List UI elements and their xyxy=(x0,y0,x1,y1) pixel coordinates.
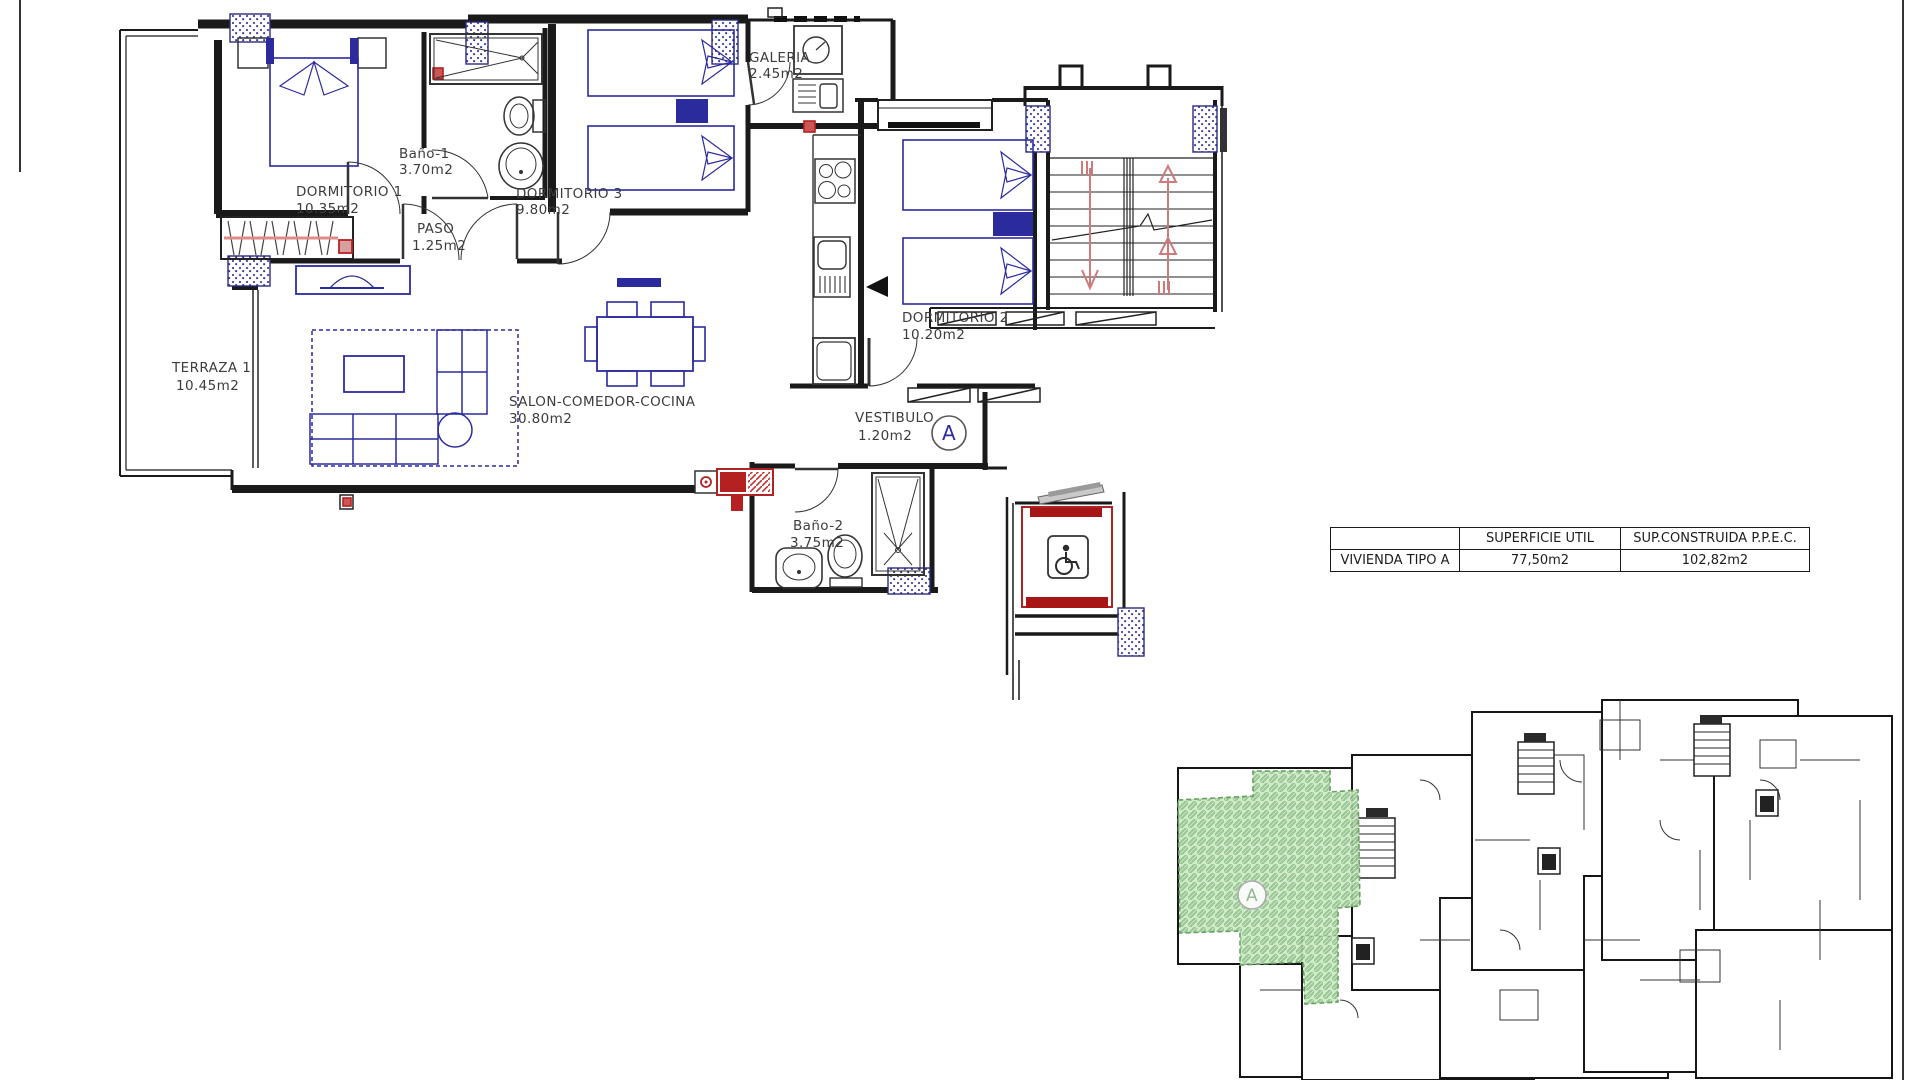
dorm2-window xyxy=(878,100,992,130)
label-galeria-area: 2.45m2 xyxy=(749,66,803,82)
summary-table-row-label: VIVIENDA TIPO A xyxy=(1331,550,1460,572)
label-dormitorio-3: DORMITORIO 3 xyxy=(516,186,623,202)
label-galeria: GALERIA xyxy=(749,50,811,66)
summary-table-superficie-util-value: 77,50m2 xyxy=(1460,550,1621,572)
twin-beds-icon xyxy=(903,140,1033,304)
laundry-sink-icon xyxy=(793,79,843,112)
label-bano-1: Baño-1 xyxy=(399,146,449,162)
key-plan-unit-letter: A xyxy=(1246,886,1258,906)
washbasin-icon xyxy=(499,143,543,189)
summary-table-col-superficie: SUPERFICIE UTIL xyxy=(1460,528,1621,550)
coffee-table xyxy=(344,356,404,392)
label-terraza-1-area: 10.45m2 xyxy=(176,378,239,394)
label-dormitorio-2: DORMITORIO 2 xyxy=(902,310,1009,326)
dining-table-icon xyxy=(585,278,705,386)
label-vestibulo: VESTIBULO xyxy=(855,410,934,426)
summary-table-header-row: SUPERFICIE UTIL SUP.CONSTRUIDA P.P.E.C. xyxy=(1331,528,1810,550)
label-vestibulo-area: 1.20m2 xyxy=(858,428,912,444)
label-dormitorio-3-area: 9.80m2 xyxy=(516,202,570,218)
staircase xyxy=(1050,158,1214,296)
summary-table-col-construida: SUP.CONSTRUIDA P.P.E.C. xyxy=(1621,528,1810,550)
counter-edge xyxy=(813,135,861,385)
label-salon-area: 30.80m2 xyxy=(509,411,572,427)
label-bano-1-area: 3.70m2 xyxy=(399,162,453,178)
sofa-icon xyxy=(310,330,487,464)
hob-icon xyxy=(815,159,855,203)
summary-table: SUPERFICIE UTIL SUP.CONSTRUIDA P.P.E.C. … xyxy=(1330,527,1810,572)
unit-marker-letter: A xyxy=(942,421,956,445)
electrical-panel xyxy=(695,469,773,511)
label-dormitorio-2-area: 10.20m2 xyxy=(902,327,965,343)
washbasin-icon xyxy=(776,548,822,588)
elevator xyxy=(1022,482,1112,608)
shower-icon xyxy=(872,473,924,575)
wheelchair-icon xyxy=(1048,536,1088,578)
louver-window xyxy=(221,217,353,259)
summary-table-data-row: VIVIENDA TIPO A 77,50m2 102,82m2 xyxy=(1331,550,1810,572)
summary-table-corner-cell xyxy=(1331,528,1460,550)
label-paso-area: 1.25m2 xyxy=(412,238,466,254)
kitchen-sink-icon xyxy=(814,237,850,297)
sideboard-tv-icon xyxy=(296,266,410,294)
toilet-icon xyxy=(504,97,545,135)
label-dormitorio-1-area: 10.35m2 xyxy=(296,201,359,217)
unit-marker: A xyxy=(932,416,966,450)
entrance-arrow-icon xyxy=(866,276,888,297)
label-bano-2-area: 3.75m2 xyxy=(790,535,844,551)
wall-markers xyxy=(343,68,815,506)
main-floor-plan: DORMITORIO 1 10.35m2 Baño-1 3.70m2 PASO … xyxy=(120,8,1227,700)
label-dormitorio-1: DORMITORIO 1 xyxy=(296,184,403,200)
label-bano-2: Baño-2 xyxy=(793,518,843,534)
label-salon-comedor-cocina: SALON-COMEDOR-COCINA xyxy=(509,394,696,410)
summary-table-sup-construida-value: 102,82m2 xyxy=(1621,550,1810,572)
fridge-icon xyxy=(813,338,855,384)
double-bed-icon xyxy=(238,38,386,166)
key-plan: A xyxy=(1178,700,1892,1080)
label-paso: PASO xyxy=(417,221,454,237)
label-terraza-1: TERRAZA 1 xyxy=(171,360,251,376)
